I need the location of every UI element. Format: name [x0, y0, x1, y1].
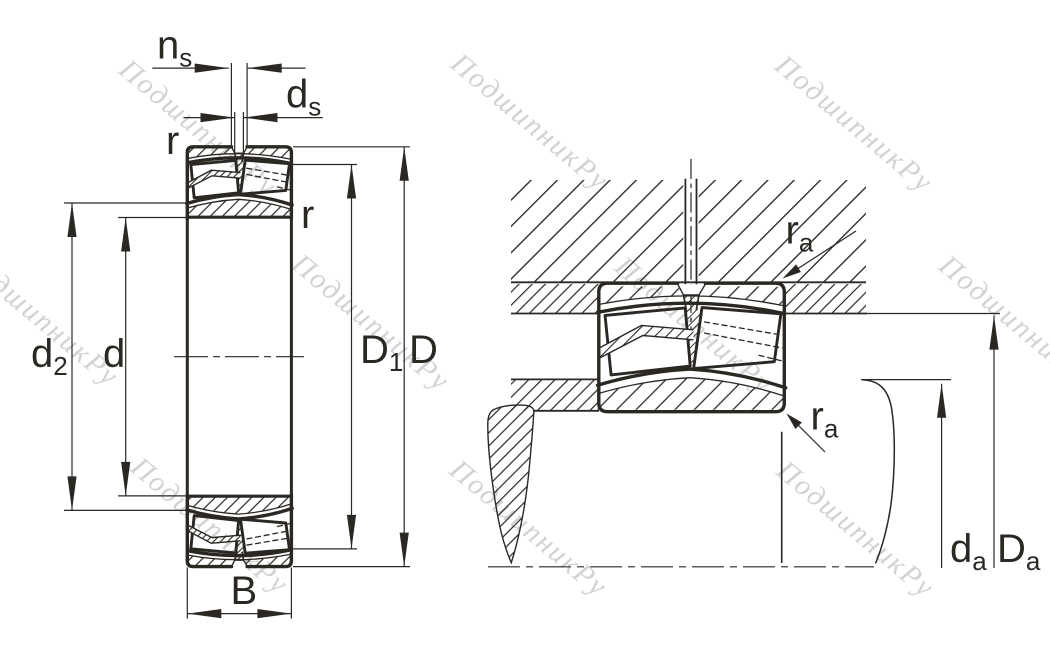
svg-text:r: r — [301, 193, 314, 237]
svg-text:ds: ds — [286, 73, 321, 122]
svg-text:da: da — [950, 527, 987, 576]
svg-text:d: d — [103, 332, 125, 376]
svg-text:ПодшипникРу: ПодшипникРу — [932, 249, 1050, 400]
svg-text:B: B — [231, 569, 258, 613]
svg-text:ПодшипникРу: ПодшипникРу — [124, 450, 295, 601]
svg-text:ПодшипникРу: ПодшипникРу — [770, 454, 941, 605]
svg-text:ПодшипникРу: ПодшипникРу — [285, 247, 456, 398]
svg-text:Da: Da — [997, 527, 1041, 576]
svg-text:ra: ra — [811, 395, 839, 444]
svg-text:r: r — [166, 119, 179, 163]
svg-text:ПодшипникРу: ПодшипникРу — [444, 47, 615, 198]
svg-text:ns: ns — [157, 24, 192, 73]
svg-text:D: D — [409, 328, 438, 372]
svg-text:ПодшипникРу: ПодшипникРу — [768, 49, 939, 200]
